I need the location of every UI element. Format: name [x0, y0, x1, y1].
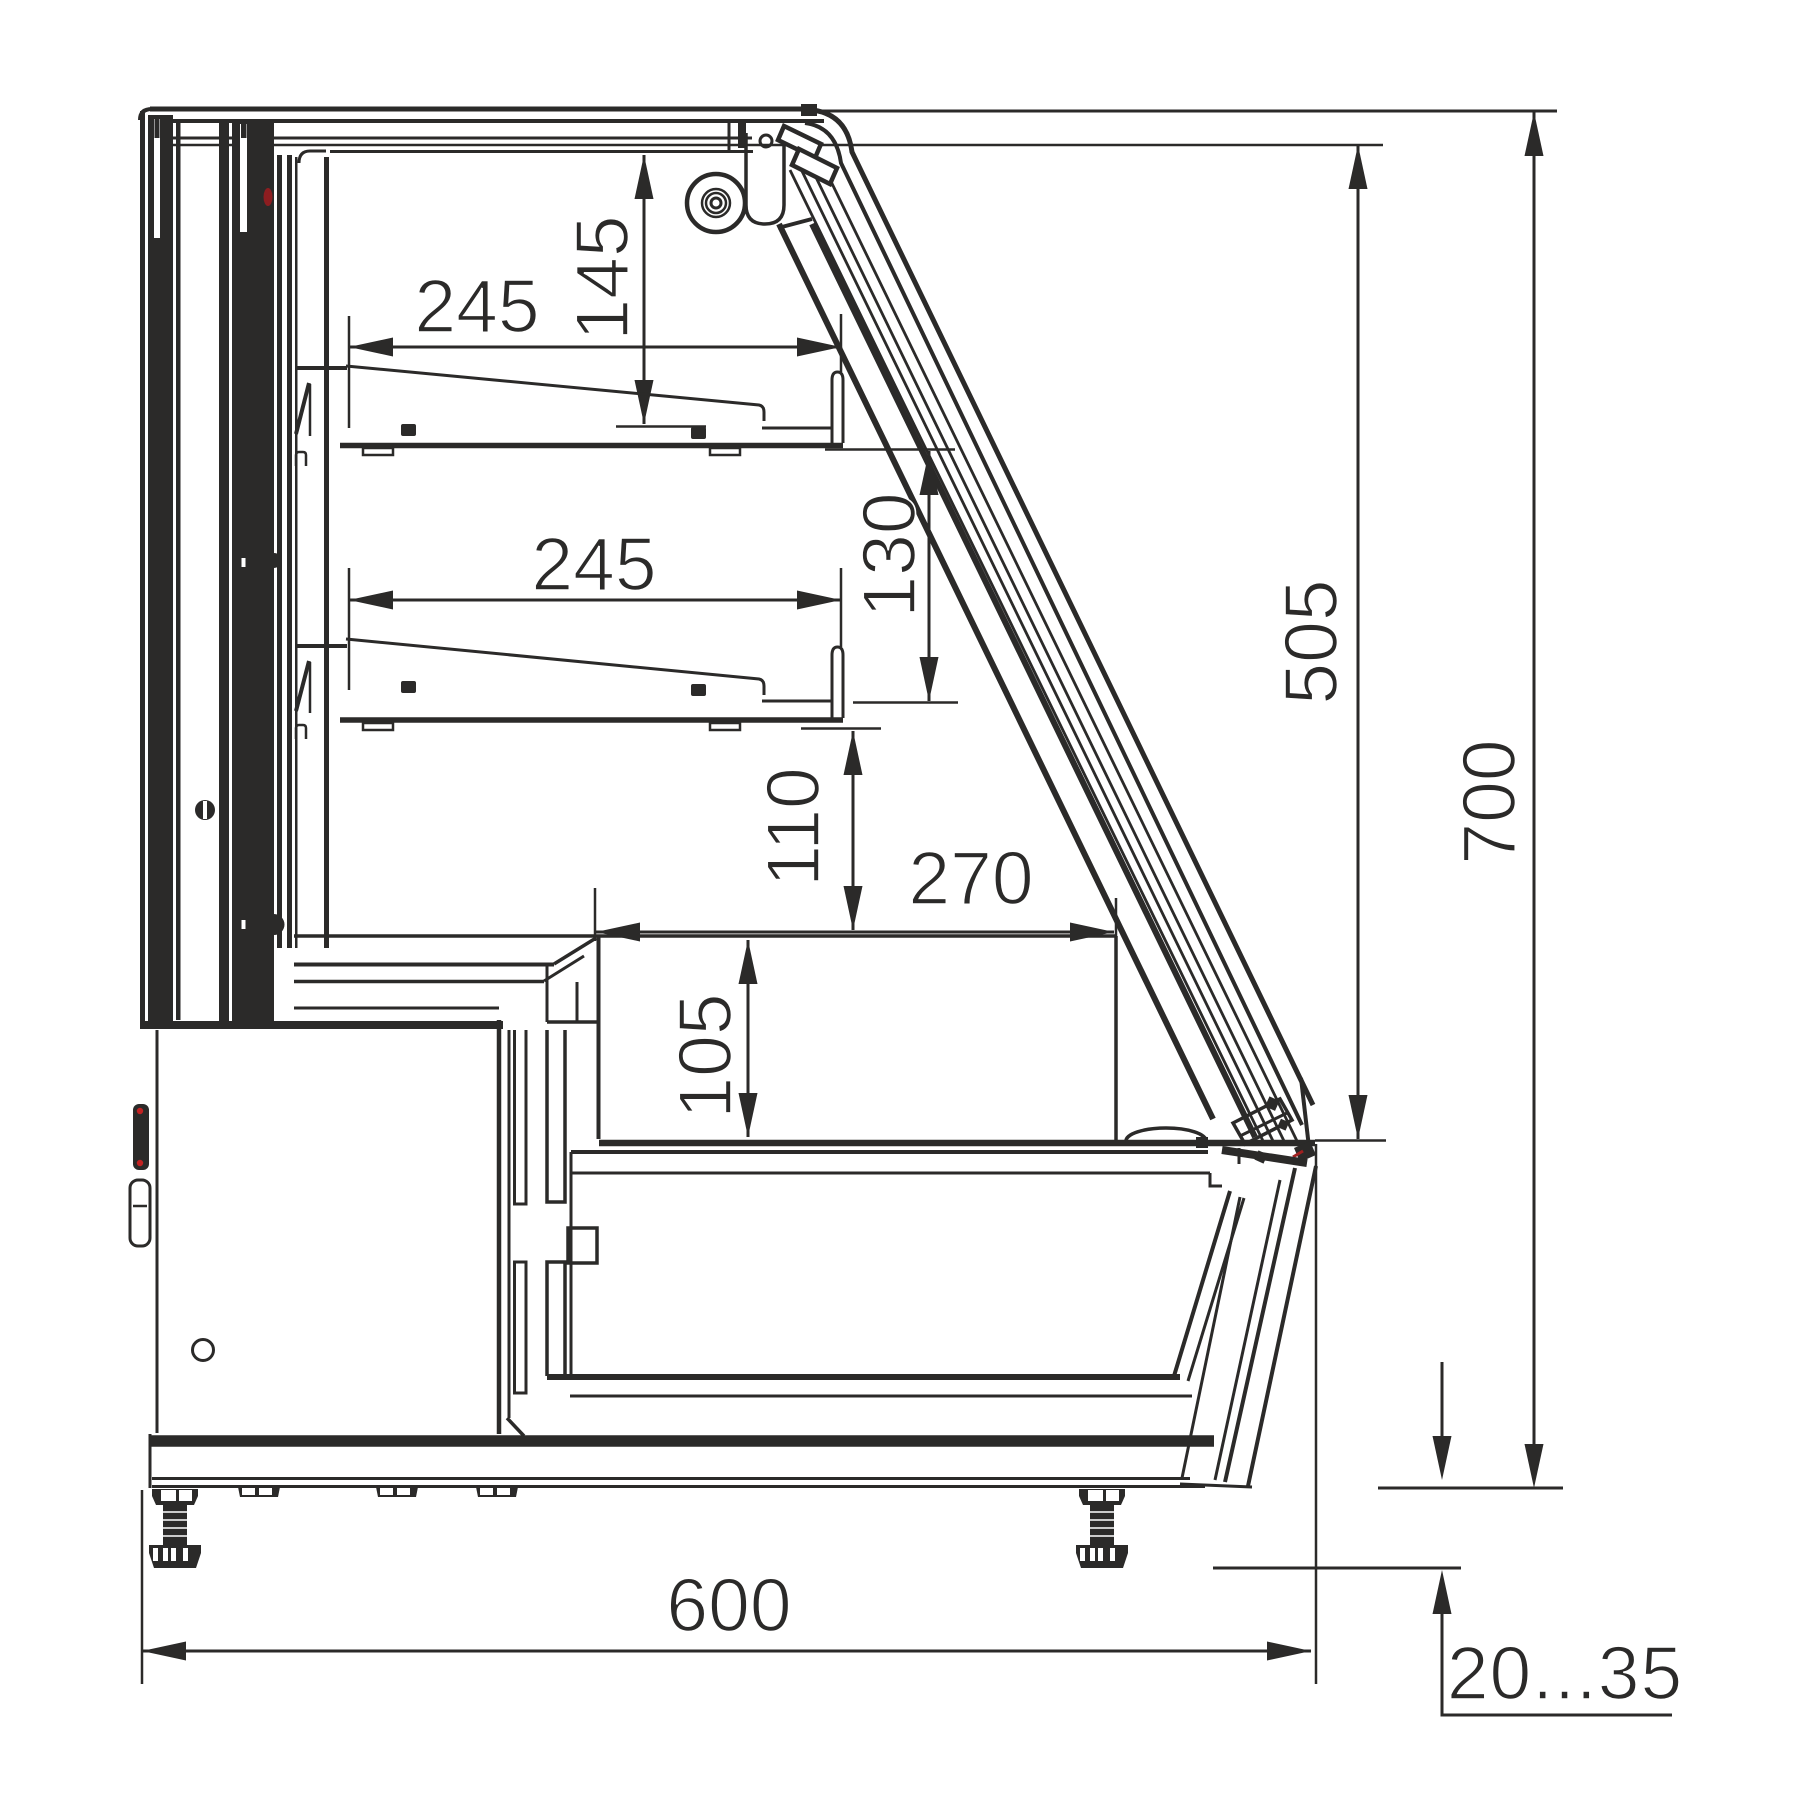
svg-text:505: 505 — [1269, 579, 1353, 704]
svg-text:270: 270 — [908, 836, 1033, 920]
svg-text:105: 105 — [663, 993, 747, 1118]
svg-text:20...35: 20...35 — [1447, 1631, 1683, 1715]
svg-text:245: 245 — [414, 264, 539, 348]
svg-text:145: 145 — [560, 215, 644, 340]
svg-text:130: 130 — [847, 492, 931, 617]
svg-text:110: 110 — [751, 767, 835, 887]
svg-text:600: 600 — [666, 1563, 791, 1647]
svg-text:700: 700 — [1447, 739, 1531, 864]
svg-text:245: 245 — [531, 522, 656, 606]
